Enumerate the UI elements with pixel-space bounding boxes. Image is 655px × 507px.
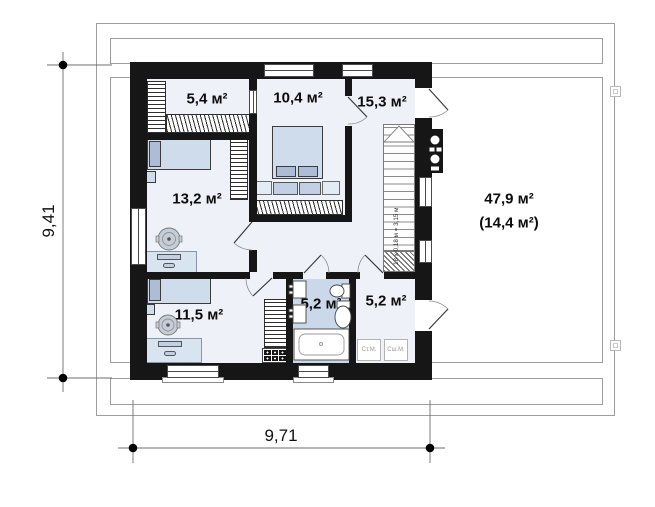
- washing-machine: Ст.М.: [357, 339, 381, 361]
- wall-bedroom-top-bottom: [257, 215, 345, 222]
- window-bottom-bedroom: [167, 365, 219, 378]
- room-label-laundry: 5,2 м²: [365, 293, 406, 310]
- nightstand-right-bedroom-top: [322, 181, 340, 195]
- closet-bedroom-left: [230, 139, 248, 200]
- attic-label-total: 47,9 м²: [484, 191, 533, 208]
- room-label-hall: 15,3 м²: [357, 94, 406, 111]
- dryer-machine-label: Сш.М.: [387, 347, 404, 353]
- door-gap-laundry: [360, 272, 384, 279]
- closet-bedroom-bottom: [264, 299, 287, 348]
- door-gap-bathroom: [303, 272, 326, 279]
- desk-pad-bedroom-bottom: [164, 351, 176, 356]
- wall-wardrobe-bottom: [147, 133, 257, 140]
- pillow-bedroom-bottom: [149, 279, 161, 301]
- wardrobe-shelving-left: [147, 81, 166, 134]
- window-bottom-bathroom: [298, 365, 329, 378]
- utility-stove-grid: [262, 348, 288, 363]
- desk-pad-bedroom-left: [163, 263, 175, 268]
- wall-bedroom-top-right-b: [345, 126, 352, 222]
- pillow-left-bedroom-top: [276, 166, 296, 177]
- bench-right-bedroom-top: [299, 182, 321, 195]
- door-gap-bedroom-bottom: [250, 272, 273, 279]
- wall-bedroom-left-pier: [249, 250, 257, 272]
- door-gap-hall-attic: [415, 88, 432, 118]
- bathroom-floor: [293, 279, 349, 363]
- staircase: [383, 124, 415, 251]
- staircase-cut-hatch: [383, 251, 415, 272]
- wall-bedroom-left: [249, 140, 257, 222]
- window-right-lower: [419, 240, 432, 263]
- chimney-block: [427, 129, 443, 173]
- wall-bathroom-left: [286, 279, 293, 363]
- window-top-bedroom: [264, 64, 314, 77]
- dimension-width-label: 9,71: [264, 426, 297, 445]
- room-label-bedroom-top: 10,4 м²: [273, 90, 322, 107]
- pillow-right-bedroom-top: [298, 166, 318, 177]
- bench-left-bedroom-top: [273, 182, 298, 195]
- attic-label-usable: (14,4 м²): [479, 215, 538, 232]
- room-label-bedroom-bottom: 11,5 м²: [175, 307, 224, 324]
- wall-corridor-south: [147, 272, 432, 279]
- washing-machine-label: Ст.М.: [362, 347, 377, 353]
- room-label-bathroom: 5,2 м²: [300, 296, 341, 313]
- dimension-height-label: 9,41: [39, 204, 58, 237]
- door-gap-laundry-attic: [415, 300, 432, 331]
- wall-bathroom-right: [349, 279, 356, 363]
- desk-item-bedroom-bottom: [158, 341, 182, 347]
- window-left-bedroom: [131, 208, 146, 265]
- desk-item-bedroom-left: [157, 254, 181, 260]
- roof-marker-top: [610, 86, 621, 97]
- window-top-hall: [342, 64, 373, 77]
- floor-plan-canvas: Ст.М. Сш.М. 5,4 м² 10,4 м² 15,3 м² 13,2 …: [0, 0, 655, 507]
- roof-marker-bottom: [610, 340, 621, 351]
- closet-bedroom-top: [253, 200, 343, 215]
- sliding-door-wardrobe: [249, 90, 257, 114]
- room-label-bedroom-left: 13,2 м²: [172, 191, 221, 208]
- wardrobe-shelving-bottom: [166, 114, 250, 133]
- dryer-machine: Сш.М.: [384, 339, 408, 361]
- pillow-bedroom-left: [149, 141, 161, 167]
- roof-outline-top-strip: [110, 38, 603, 64]
- wall-bedroom-top-right-a: [345, 79, 352, 96]
- wall-wardrobe-b: [249, 114, 257, 133]
- window-right-upper: [419, 177, 432, 207]
- room-label-wardrobe: 5,4 м²: [186, 91, 227, 108]
- wall-wardrobe-a: [249, 79, 257, 90]
